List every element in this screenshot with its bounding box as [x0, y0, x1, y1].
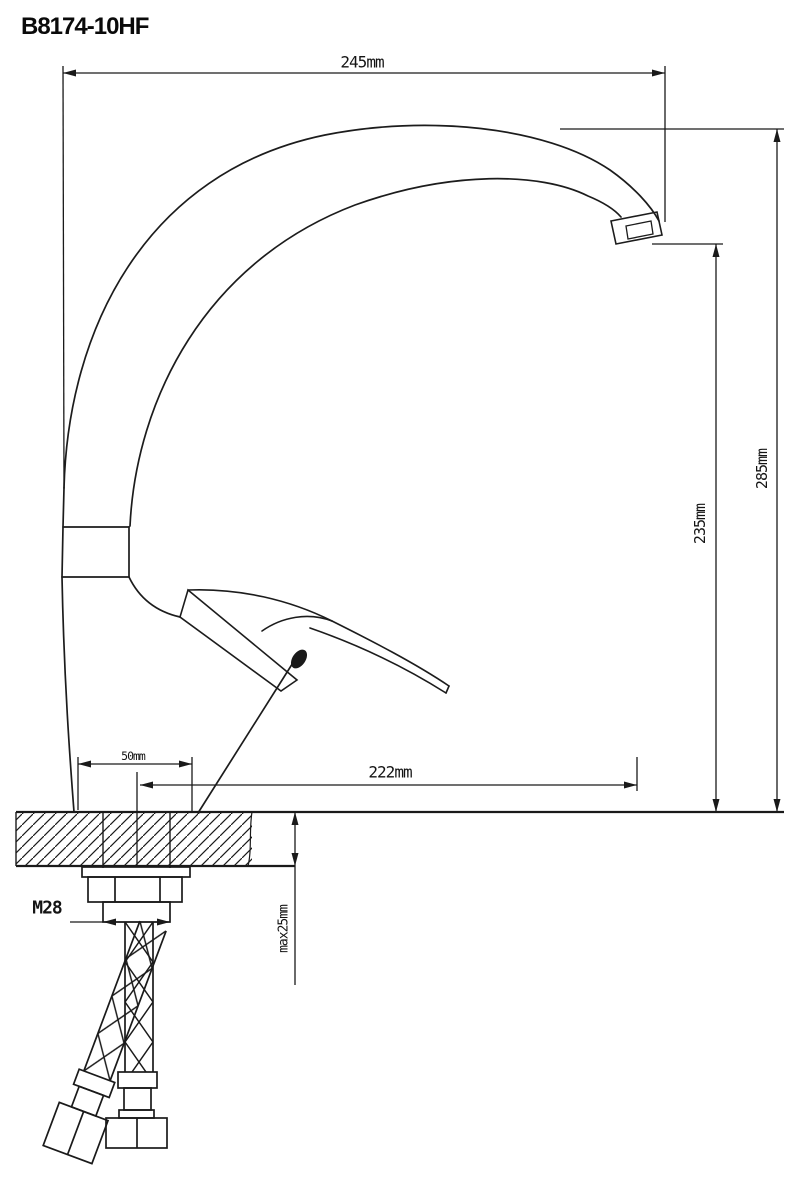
- faucet-technical-drawing: [0, 0, 803, 1180]
- supply-hose-right: [43, 917, 177, 1164]
- handle-pivot-dot: [288, 647, 311, 672]
- faucet-spout-outline: [62, 125, 662, 813]
- thread-size-label: M28: [32, 898, 62, 919]
- dim-base-width-label: 50mm: [121, 749, 145, 763]
- technical-drawing-page: B8174-10HF 245mm 285mm 235mm 222mm 50mm …: [0, 0, 803, 1180]
- faucet-handle: [180, 590, 449, 693]
- dim-total-height-label: 285mm: [753, 449, 771, 489]
- dim-reach-label: 222mm: [368, 763, 411, 782]
- dim-top-width-label: 245mm: [340, 53, 383, 72]
- dim-counter-thickness-label: max25mm: [277, 905, 292, 953]
- dim-spout-height-label: 235mm: [691, 504, 709, 544]
- model-number: B8174-10HF: [21, 13, 148, 41]
- supply-hoses: [43, 917, 177, 1164]
- countertop-section: [16, 812, 784, 868]
- dimension-arrowheads: [63, 70, 781, 926]
- mounting-hardware: [82, 867, 190, 922]
